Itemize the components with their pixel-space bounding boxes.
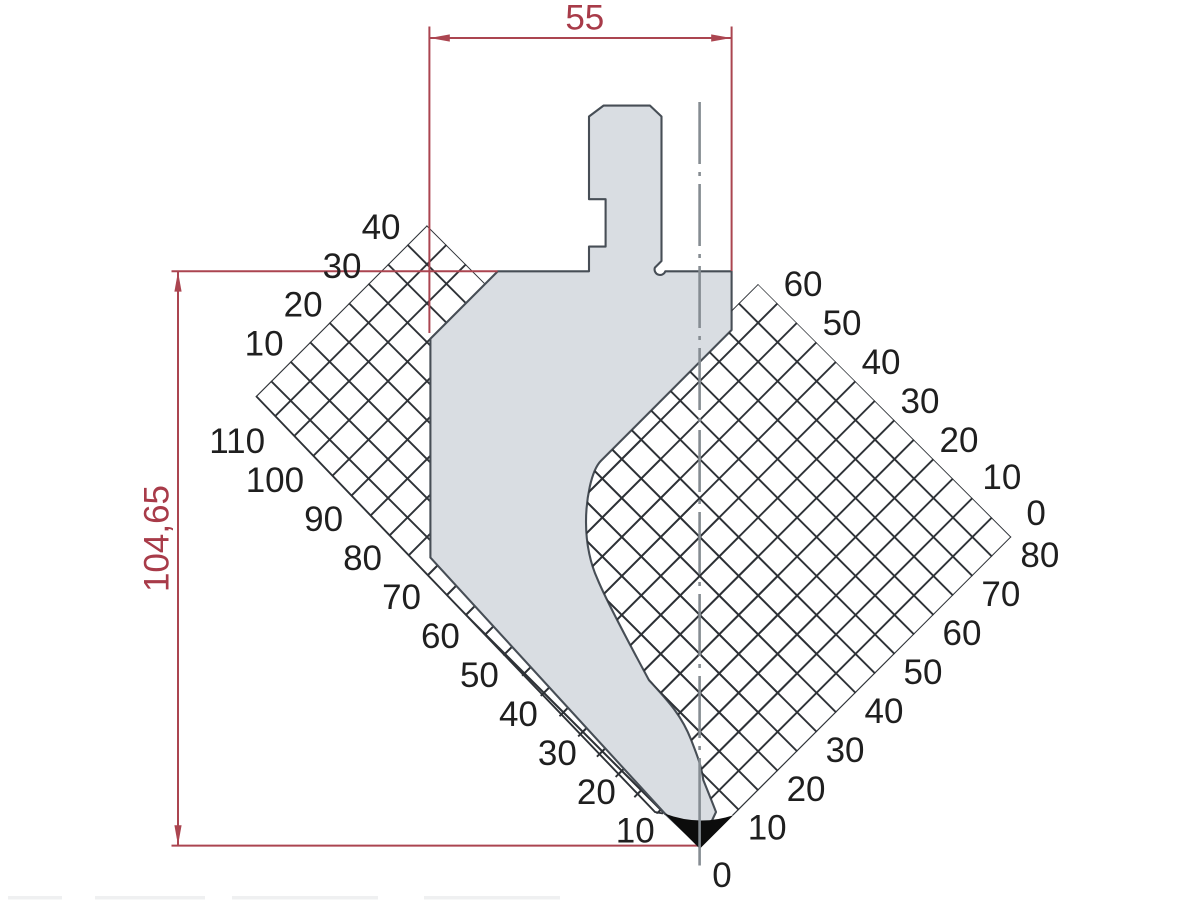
svg-text:60: 60 (784, 265, 823, 304)
svg-text:10: 10 (748, 809, 787, 848)
svg-text:70: 70 (382, 578, 421, 617)
svg-text:30: 30 (538, 734, 577, 773)
svg-text:55: 55 (565, 0, 604, 38)
svg-text:30: 30 (826, 731, 865, 770)
svg-text:40: 40 (362, 208, 401, 247)
svg-text:10: 10 (982, 458, 1021, 497)
svg-text:100: 100 (246, 461, 304, 500)
svg-text:50: 50 (460, 656, 499, 695)
svg-text:40: 40 (865, 692, 904, 731)
svg-text:30: 30 (323, 247, 362, 286)
svg-text:10: 10 (245, 325, 284, 364)
svg-text:40: 40 (862, 343, 901, 382)
svg-text:50: 50 (904, 653, 943, 692)
svg-text:20: 20 (284, 286, 323, 325)
svg-text:50: 50 (823, 304, 862, 343)
svg-text:10: 10 (616, 812, 655, 851)
svg-text:60: 60 (943, 614, 982, 653)
svg-text:0: 0 (1026, 494, 1045, 533)
svg-text:110: 110 (209, 422, 265, 461)
svg-text:20: 20 (787, 770, 826, 809)
svg-text:70: 70 (981, 575, 1020, 614)
svg-text:30: 30 (901, 382, 940, 421)
svg-text:40: 40 (499, 695, 538, 734)
svg-text:104,65: 104,65 (138, 485, 177, 592)
svg-text:20: 20 (940, 421, 979, 460)
svg-text:90: 90 (304, 500, 343, 539)
svg-text:20: 20 (577, 773, 616, 812)
svg-text:80: 80 (343, 539, 382, 578)
svg-text:0: 0 (712, 856, 731, 895)
svg-text:80: 80 (1020, 536, 1059, 575)
svg-text:60: 60 (421, 617, 460, 656)
